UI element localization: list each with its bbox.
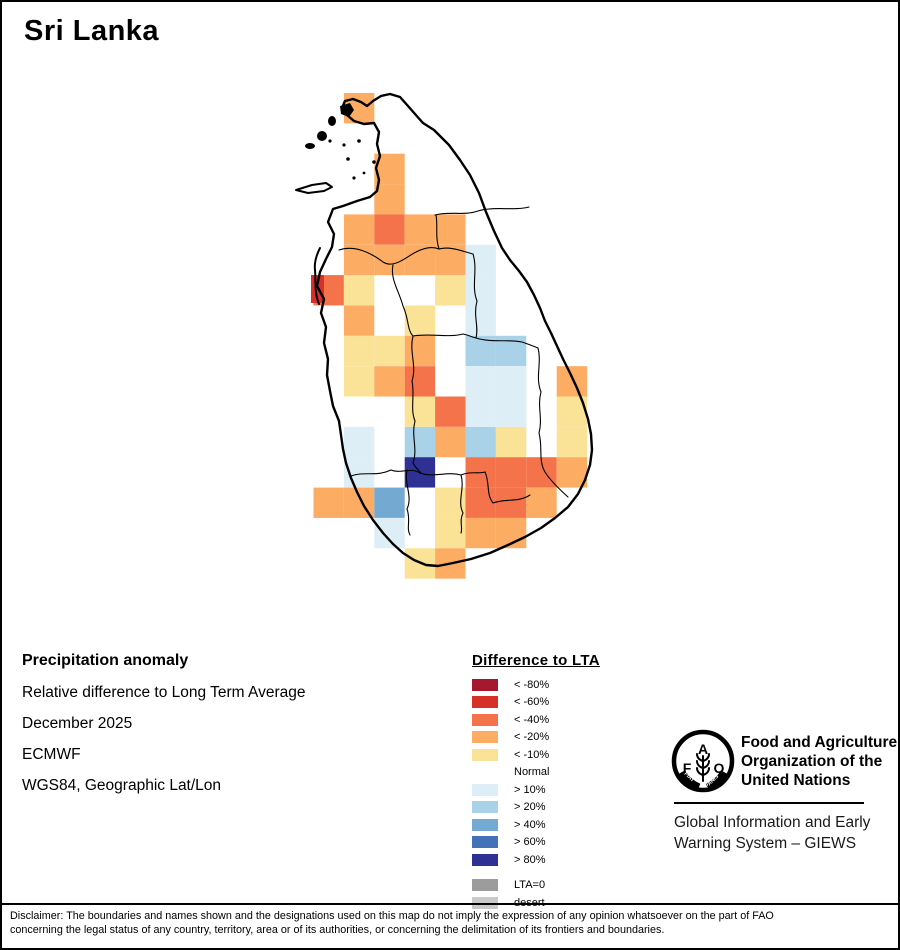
grid-cell <box>374 245 404 275</box>
legend-row: Normal <box>472 764 600 782</box>
info-block: Precipitation anomaly Relative differenc… <box>22 652 306 808</box>
grid-cell <box>344 366 374 396</box>
disclaimer-line-2: concerning the legal status of any count… <box>10 924 894 938</box>
grid-cell <box>405 397 435 427</box>
legend-swatch <box>472 696 498 708</box>
grid-cell <box>496 366 526 396</box>
giews-name: Global Information and EarlyWarning Syst… <box>674 812 870 854</box>
grid-cell <box>435 275 465 305</box>
legend-label: < -60% <box>514 696 549 708</box>
grid-cell <box>557 366 587 396</box>
legend-swatch <box>472 819 498 831</box>
grid-cell <box>405 336 435 366</box>
legend: Difference to LTA < -80%< -60%< -40%< -2… <box>472 652 600 912</box>
grid-cell <box>496 397 526 427</box>
legend-row: > 80% <box>472 851 600 869</box>
grid-cell <box>466 427 496 457</box>
disclaimer-separator <box>2 903 898 905</box>
disclaimer-line-1: Disclaimer: The boundaries and names sho… <box>10 910 894 924</box>
legend-label: > 60% <box>514 836 546 848</box>
legend-label: < -10% <box>514 749 549 761</box>
info-line: ECMWF <box>22 746 306 764</box>
grid-cell <box>374 366 404 396</box>
grid-cell <box>344 214 374 244</box>
legend-swatch <box>472 879 498 891</box>
legend-row: > 20% <box>472 799 600 817</box>
grid-cell <box>374 214 404 244</box>
grid-cell <box>526 488 556 518</box>
legend-row: < -60% <box>472 694 600 712</box>
grid-cell <box>496 488 526 518</box>
legend-swatch <box>472 749 498 761</box>
legend-row: > 40% <box>472 816 600 834</box>
legend-swatch <box>472 854 498 866</box>
info-line: WGS84, Geographic Lat/Lon <box>22 777 306 795</box>
fao-logo-letter-a: A <box>698 741 708 757</box>
org-line: Organization of the <box>741 752 897 771</box>
disclaimer: Disclaimer: The boundaries and names sho… <box>10 910 894 937</box>
legend-swatch <box>472 679 498 691</box>
grid-cell <box>374 184 404 214</box>
grid-cell <box>466 245 496 275</box>
legend-label: < -80% <box>514 679 549 691</box>
legend-label: < -40% <box>514 714 549 726</box>
legend-label: > 10% <box>514 784 546 796</box>
legend-row: < -80% <box>472 676 600 694</box>
grid-cell <box>374 518 404 548</box>
legend-swatch <box>472 784 498 796</box>
legend-row: > 10% <box>472 781 600 799</box>
legend-row: < -20% <box>472 729 600 747</box>
legend-swatch <box>472 836 498 848</box>
legend-title: Difference to LTA <box>472 652 600 669</box>
grid-cell <box>314 488 344 518</box>
fao-org-name: Food and AgricultureOrganization of theU… <box>741 733 897 790</box>
legend-label: Normal <box>514 766 549 778</box>
grid-cell <box>405 366 435 396</box>
grid-cell <box>496 427 526 457</box>
legend-label: < -20% <box>514 731 549 743</box>
org-line: Food and Agriculture <box>741 733 897 752</box>
brand-divider <box>674 802 864 804</box>
grid-cell <box>466 275 496 305</box>
grid-cell <box>344 427 374 457</box>
fao-logo: F A O FIAT PANIS <box>670 728 736 794</box>
grid-cell <box>435 427 465 457</box>
legend-swatch <box>472 731 498 743</box>
grid-cell <box>466 397 496 427</box>
grid-cell <box>466 306 496 336</box>
grid-cell <box>405 427 435 457</box>
legend-swatch <box>472 801 498 813</box>
grid-cell <box>496 457 526 487</box>
info-line: Relative difference to Long Term Average <box>22 684 306 702</box>
giews-line: Global Information and Early <box>674 812 870 833</box>
map-page: Sri Lanka <box>0 0 900 950</box>
legend-label: > 40% <box>514 819 546 831</box>
org-line: United Nations <box>741 771 897 790</box>
grid-cell <box>405 214 435 244</box>
grid-cell <box>557 427 587 457</box>
legend-swatch <box>472 714 498 726</box>
legend-row: > 60% <box>472 834 600 852</box>
legend-label: > 20% <box>514 801 546 813</box>
map-svg <box>2 2 900 627</box>
info-heading: Precipitation anomaly <box>22 652 306 670</box>
grid-cell <box>344 275 374 305</box>
legend-row: < -40% <box>472 711 600 729</box>
grid-cell <box>374 488 404 518</box>
grid-cell <box>374 336 404 366</box>
giews-line: Warning System – GIEWS <box>674 833 870 854</box>
legend-row: < -10% <box>472 746 600 764</box>
grid-cell <box>344 306 374 336</box>
info-line: December 2025 <box>22 715 306 733</box>
grid-cell <box>405 306 435 336</box>
grid-cell <box>466 518 496 548</box>
legend-footer: LTA=0desert <box>472 877 600 912</box>
grid-cell <box>435 397 465 427</box>
legend-rows: < -80%< -60%< -40%< -20%< -10%Normal> 10… <box>472 676 600 869</box>
grid-cell <box>405 245 435 275</box>
legend-row: LTA=0 <box>472 877 600 895</box>
grid-cell <box>466 488 496 518</box>
legend-label: LTA=0 <box>514 879 545 891</box>
grid-cell <box>466 366 496 396</box>
info-lines: Relative difference to Long Term Average… <box>22 684 306 795</box>
grid-cell <box>344 336 374 366</box>
legend-label: > 80% <box>514 854 546 866</box>
grid-cell <box>435 214 465 244</box>
map-area <box>2 2 900 627</box>
